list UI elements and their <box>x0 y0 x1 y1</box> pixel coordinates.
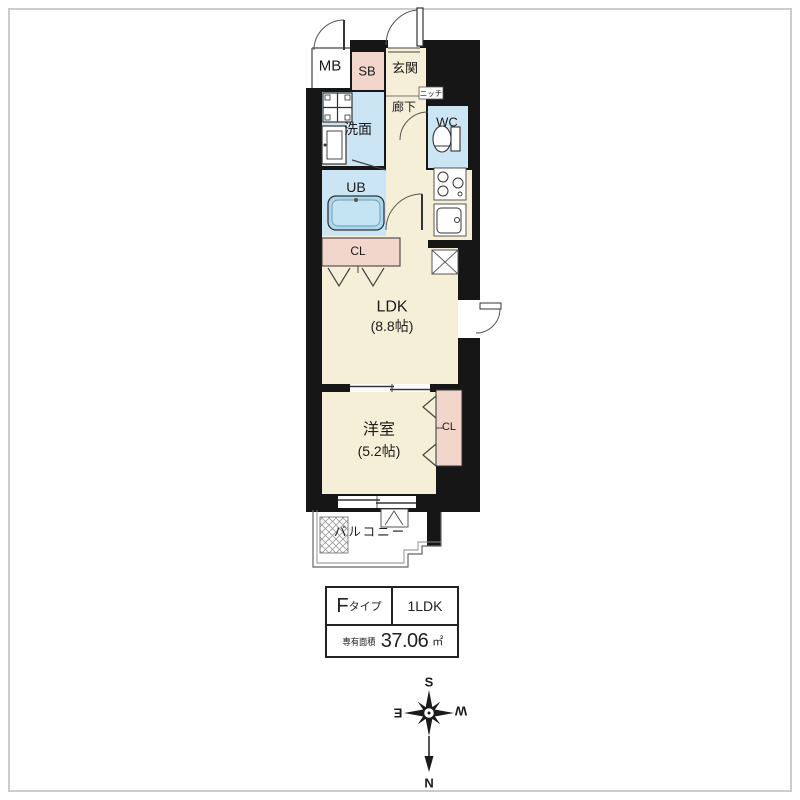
unit-type-letter: F <box>336 595 348 618</box>
niche-label: ニッチ <box>420 89 443 98</box>
wc-label: WC <box>436 115 458 130</box>
floor-plan-drawing: ニッチ バルコニー MB SB 玄関 洗面 廊下 WC UB CL LDK (8… <box>0 0 800 800</box>
area-unit: ㎡ <box>432 633 443 649</box>
unit-bath-label: UB <box>346 179 365 195</box>
spec-table-row-area: 専有面積 37.06 ㎡ <box>327 626 457 656</box>
vanity-icon <box>322 126 346 164</box>
bathtub-icon <box>328 196 384 230</box>
closet-upper-label: CL <box>350 244 366 258</box>
mb-label: MB <box>319 58 342 75</box>
unit-layout-cell: 1LDK <box>393 588 457 624</box>
closet-lower-label: CL <box>442 421 456 433</box>
spec-table: Fタイプ 1LDK 専有面積 37.06 ㎡ <box>325 586 459 658</box>
compass-rose: S E W N <box>393 675 467 791</box>
area-label: 専有面積 <box>342 635 375 648</box>
compass-star-icon <box>404 690 454 736</box>
room-corridor-genkan <box>386 48 426 236</box>
stove-icon <box>434 168 466 200</box>
compass-north-arrow-icon <box>425 736 434 772</box>
floor-plan-page: ニッチ バルコニー MB SB 玄関 洗面 廊下 WC UB CL LDK (8… <box>0 0 800 800</box>
ldk-size-label: (8.8帖) <box>371 318 414 334</box>
compass-west-label: W <box>454 704 467 719</box>
compass-north-label: N <box>424 776 433 791</box>
balcony-area: バルコニー <box>313 509 441 567</box>
compass-south-label: S <box>425 675 434 690</box>
kitchen-sink-icon <box>434 204 466 236</box>
balcony-window <box>338 496 416 508</box>
washer-pan-icon <box>323 93 352 122</box>
toilet-icon <box>433 126 460 152</box>
shoebox-label: SB <box>358 64 375 79</box>
balcony-label: バルコニー <box>334 525 406 539</box>
corridor-label: 廊下 <box>392 99 416 114</box>
refrigerator-space-icon <box>432 250 458 274</box>
sliding-partition <box>350 384 430 392</box>
washroom-label: 洗面 <box>344 121 372 137</box>
niche-tag: ニッチ <box>419 87 443 99</box>
kitchen-wall-stub <box>428 240 472 248</box>
compass-east-label: E <box>393 706 402 721</box>
unit-type-suffix: タイプ <box>349 598 382 614</box>
western-room-size-label: (5.2帖) <box>358 443 401 459</box>
western-room-label: 洋室 <box>363 421 395 439</box>
ldk-label: LDK <box>376 299 407 316</box>
area-value: 37.06 <box>381 630 429 653</box>
genkan-label: 玄関 <box>392 61 418 76</box>
unit-type-cell: Fタイプ <box>327 588 393 624</box>
spec-table-row-type: Fタイプ 1LDK <box>327 588 457 626</box>
